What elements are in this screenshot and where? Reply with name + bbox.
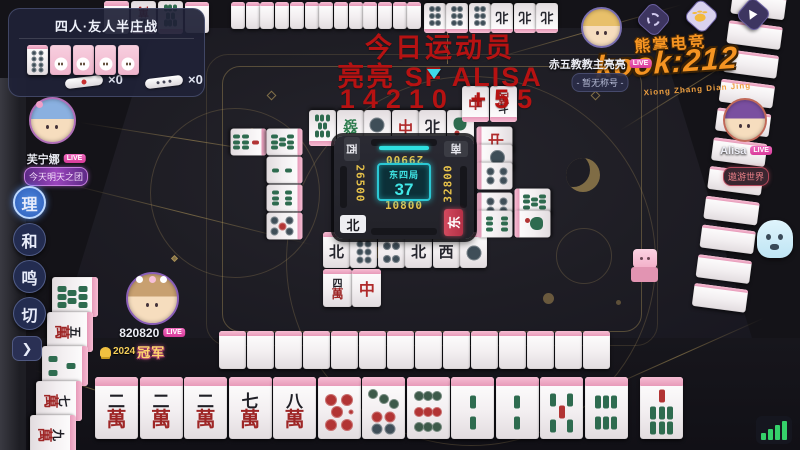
right-wall-back bbox=[699, 224, 756, 254]
top-hand-back bbox=[334, 2, 348, 29]
discard-bottom-4m: 四萬 bbox=[323, 269, 352, 307]
top-meld-tile-N: 北 bbox=[536, 3, 558, 33]
top-hand-back bbox=[246, 2, 260, 29]
dora-wall-back bbox=[50, 45, 71, 75]
drawn-tile-7s[interactable] bbox=[640, 377, 683, 439]
discard-right-9s bbox=[476, 210, 512, 237]
live-badge: LIVE bbox=[750, 146, 772, 155]
player-bottom-avatar[interactable] bbox=[126, 272, 179, 325]
bottom-wall-back bbox=[247, 331, 274, 369]
bottom-wall-back bbox=[387, 331, 414, 369]
right-wall-back bbox=[703, 195, 760, 225]
right-wall-back bbox=[692, 283, 749, 313]
player-left-nameplate: 芙宁娜LIVE bbox=[27, 150, 86, 168]
right-wall-back bbox=[696, 254, 753, 284]
bottom-wall-back bbox=[499, 331, 526, 369]
hand-tile-2m[interactable]: 二萬 bbox=[184, 377, 227, 439]
dora-wall-back bbox=[73, 45, 94, 75]
discard-top-8s bbox=[309, 110, 336, 146]
top-hand-back bbox=[378, 2, 392, 29]
live-badge: LIVE bbox=[630, 59, 652, 68]
hand-tile-2m[interactable]: 二萬 bbox=[95, 377, 138, 439]
action-button-call[interactable]: 鸣 bbox=[13, 260, 46, 293]
bottom-wall-back bbox=[583, 331, 610, 369]
top-hand-back bbox=[275, 2, 289, 29]
top-meld-tile-N: 北 bbox=[514, 3, 536, 33]
left-hand-tile-8s bbox=[52, 277, 98, 317]
dora-indicator-tile-8p bbox=[27, 45, 48, 75]
riichi-stick-indicator bbox=[379, 146, 429, 150]
honba-stick-count: ×0 bbox=[188, 72, 203, 87]
expand-button[interactable]: ❯ bbox=[12, 336, 42, 361]
player-top-avatar[interactable] bbox=[581, 7, 622, 48]
hand-tile-2m[interactable]: 二萬 bbox=[140, 377, 183, 439]
top-hand-back bbox=[260, 2, 274, 29]
bottom-wall-back bbox=[303, 331, 330, 369]
bottom-wall-back bbox=[275, 331, 302, 369]
bottom-wall-back bbox=[527, 331, 554, 369]
score-right: 32800 bbox=[442, 154, 455, 214]
player-right-avatar[interactable] bbox=[723, 98, 767, 142]
hand-tile-2s[interactable] bbox=[496, 377, 539, 439]
champion-year: 2024 bbox=[113, 346, 135, 357]
live-badge: LIVE bbox=[163, 328, 185, 337]
dora-wall-back bbox=[118, 45, 139, 75]
champion-label: 冠军 bbox=[137, 345, 165, 360]
discard-left-6s bbox=[266, 184, 302, 211]
honba-stick-icon bbox=[145, 75, 184, 90]
network-signal-icon bbox=[756, 416, 792, 444]
center-score-board: 西 南 北 东 29900 26500 32800 10800 东四局 37 bbox=[334, 136, 474, 239]
player-left-avatar[interactable] bbox=[29, 97, 76, 144]
hand-tile-5s[interactable] bbox=[540, 377, 583, 439]
bottom-wall-back bbox=[219, 331, 246, 369]
bottom-wall-back bbox=[415, 331, 442, 369]
discard-right-4p bbox=[476, 162, 512, 189]
player-top-nameplate: 赤五教教主亮亮LIVE bbox=[549, 55, 652, 73]
match-mode-title: 四人·友人半庄战 bbox=[9, 16, 204, 35]
player-right-name: Alisa bbox=[720, 145, 746, 157]
action-button-sort[interactable]: 理 bbox=[13, 186, 46, 219]
top-hand-back bbox=[305, 2, 319, 29]
discard-left-8s bbox=[266, 128, 302, 155]
discard-left-riichi-5p bbox=[266, 212, 302, 239]
hand-tile-7m[interactable]: 七萬 bbox=[229, 377, 272, 439]
overlay-line-3: 14210 +55 bbox=[340, 84, 540, 115]
hand-tile-2s[interactable] bbox=[451, 377, 494, 439]
player-left-title: 今天明天之团 bbox=[24, 167, 88, 186]
discard-right-1s bbox=[514, 210, 550, 237]
action-button-win[interactable]: 和 bbox=[13, 223, 46, 256]
hand-tile-6s[interactable] bbox=[585, 377, 628, 439]
player-bottom-nameplate: 820820LIVE bbox=[119, 324, 185, 342]
tiles-remaining: 37 bbox=[379, 181, 429, 198]
match-info-panel: 四人·友人半庄战 ×0 ×0 bbox=[8, 8, 205, 97]
bottom-wall-back bbox=[555, 331, 582, 369]
top-hand-back bbox=[363, 2, 377, 29]
emote-ghost-button[interactable] bbox=[757, 220, 793, 258]
player-right-title: 遨游世界 bbox=[723, 167, 769, 186]
action-button-discard[interactable]: 切 bbox=[13, 297, 46, 330]
player-top-name: 赤五教教主亮亮 bbox=[549, 59, 626, 71]
top-hand-back bbox=[319, 2, 333, 29]
discard-left-7s bbox=[230, 128, 266, 155]
top-hand-back bbox=[393, 2, 407, 29]
player-top-title: - 暂无称号 - bbox=[572, 73, 629, 92]
trophy-icon bbox=[100, 347, 111, 357]
game-stage: 西 南 北 东 29900 26500 32800 10800 东四局 37 四… bbox=[0, 0, 800, 450]
player-bottom-champion-badge: 2024冠军 bbox=[100, 342, 165, 361]
player-bottom-name: 820820 bbox=[119, 326, 159, 340]
seat-wind-bottom: 北 bbox=[340, 215, 366, 233]
dora-wall-back bbox=[95, 45, 116, 75]
hand-tile-7p[interactable] bbox=[362, 377, 405, 439]
top-hand-back bbox=[231, 2, 245, 29]
score-left: 26500 bbox=[354, 154, 367, 214]
top-hand-back bbox=[290, 2, 304, 29]
round-display: 东四局 37 bbox=[377, 163, 431, 201]
player-left-name: 芙宁娜 bbox=[27, 154, 60, 166]
player-right-nameplate: AlisaLIVE bbox=[720, 142, 772, 160]
bottom-wall-back bbox=[331, 331, 358, 369]
bottom-wall-back bbox=[359, 331, 386, 369]
live-badge: LIVE bbox=[64, 154, 86, 163]
left-hand-tile-9m: 九萬 bbox=[30, 415, 76, 450]
riichi-stick-icon bbox=[65, 75, 104, 90]
turn-indicator-icon bbox=[427, 69, 441, 79]
hand-tile-9p[interactable] bbox=[407, 377, 450, 439]
hand-tile-0p[interactable] bbox=[318, 377, 361, 439]
hand-tile-8m[interactable]: 八萬 bbox=[273, 377, 316, 439]
discard-bottom-R: 中 bbox=[352, 269, 381, 307]
exit-icon[interactable] bbox=[735, 0, 772, 33]
top-hand-back bbox=[407, 2, 421, 29]
left-hand-tile-3s bbox=[42, 346, 88, 386]
brand-subtitle: Xiong Zhang Dian Jing bbox=[643, 81, 751, 97]
discard-left-2s bbox=[266, 156, 302, 183]
bottom-wall-back bbox=[471, 331, 498, 369]
bottom-wall-back bbox=[443, 331, 470, 369]
top-hand-back bbox=[349, 2, 363, 29]
